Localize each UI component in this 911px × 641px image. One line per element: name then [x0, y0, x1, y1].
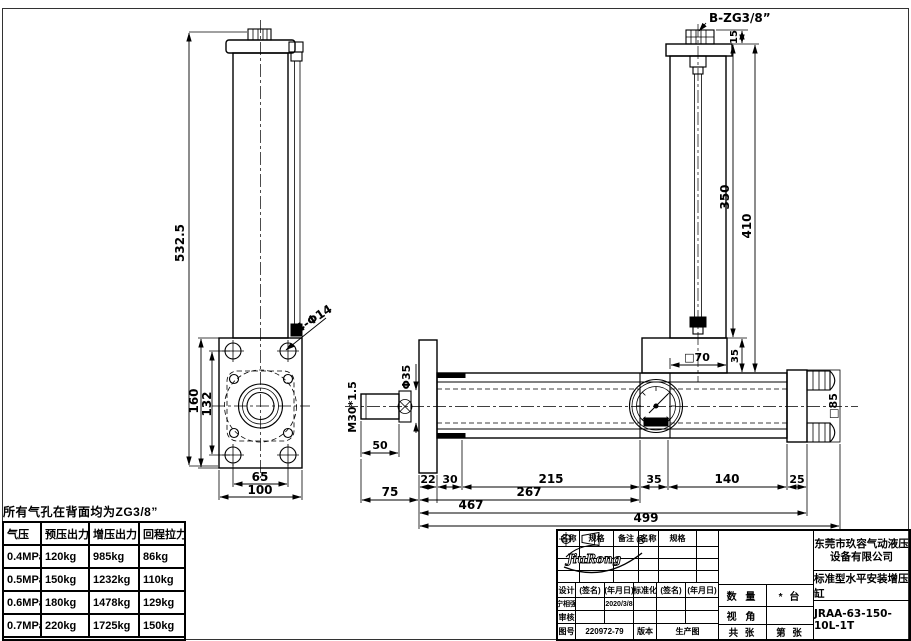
audit-row: 审核: [558, 611, 718, 624]
dim-30: 30: [442, 473, 458, 486]
spec-cell: 180kg: [42, 592, 90, 613]
dim-port-offset: 15: [729, 30, 740, 44]
company-line1: 东莞市玖容气动液压: [814, 538, 909, 551]
logo-box: JiuRong ®: [719, 531, 813, 585]
dim-hole-span-h: 65: [252, 470, 269, 484]
spec-header: 增压出力: [90, 523, 140, 544]
spec-cell: 0.4MPa: [4, 546, 42, 567]
spec-header: 气压: [4, 523, 42, 544]
view-angle-row: 视 角: [719, 607, 813, 625]
cell: [686, 598, 718, 610]
spec-cell: 86kg: [140, 546, 184, 567]
dim-block-height: 35: [730, 349, 741, 363]
spec-table: 气压 预压出力 增压出力 回程拉力 0.4MPa 120kg 985kg 86k…: [2, 521, 186, 641]
dim-35: 35: [646, 473, 661, 486]
audit-label: 审核: [558, 611, 576, 623]
sheets-total: 共 张: [719, 625, 767, 639]
company-name: 东莞市玖容气动液压 设备有限公司: [814, 531, 909, 571]
pressure-gauge: [630, 380, 683, 433]
dim-total-height: 532.5: [173, 224, 187, 262]
design-label: 设计: [558, 583, 576, 597]
model-number: JRAA-63-150-10L-1T: [814, 601, 909, 639]
dim-square85: □85: [827, 393, 840, 419]
dim-215: 215: [538, 472, 563, 486]
left-view: 532.5 160 132 65 100 4-Φ14: [173, 20, 335, 500]
title-block-middle: JiuRong ® 数 量 * 台 视 角 共 张 第 张: [719, 531, 814, 639]
parts-cell: [697, 571, 718, 582]
rod-thread-label: M30*1.5: [346, 381, 359, 433]
port-b-label: B-ZG3/8”: [709, 11, 771, 25]
dim-75: 75: [382, 485, 399, 499]
spec-cell: 110kg: [140, 569, 184, 590]
cell: [634, 611, 657, 623]
spec-cell: 0.5MPa: [4, 569, 42, 590]
spec-cell: 1725kg: [90, 615, 140, 636]
spec-cell: 1232kg: [90, 569, 140, 590]
drawing-no-label: 图号: [558, 624, 576, 639]
main-view: M30*1.5 Φ35 50: [345, 338, 858, 529]
parts-header: [697, 531, 718, 546]
title-block: 名称 规格 备注 名称 规格 设计 (签名) (年月日) 标准化 (签名) (年…: [556, 529, 911, 641]
title-block-right: 东莞市玖容气动液压 设备有限公司 标准型水平安装增压缸 JRAA-63-150-…: [814, 531, 909, 639]
spec-cell: 985kg: [90, 546, 140, 567]
spec-cell: 1478kg: [90, 592, 140, 613]
parts-header: 规格: [659, 531, 697, 546]
rod-dia-label: Φ35: [400, 365, 413, 390]
date-label: (年月日): [686, 583, 718, 597]
dim-25: 25: [789, 473, 804, 486]
sheet-no: 第 张: [767, 625, 813, 639]
qty-row: 数 量 * 台: [719, 585, 813, 607]
spec-header: 回程拉力: [140, 523, 184, 544]
dim-467: 467: [458, 498, 483, 512]
parts-cell: [697, 559, 718, 570]
designer-row: 宁相强 2020/3/8: [558, 598, 718, 611]
company-line2: 设备有限公司: [830, 551, 893, 564]
designer-name: 宁相强: [558, 598, 576, 610]
parts-cell: [697, 547, 718, 558]
sign-label: (签名): [576, 583, 605, 597]
view-angle-label: 视 角: [719, 607, 767, 624]
first-angle-projection-icon: [767, 607, 813, 624]
dim-plate-height: 160: [187, 388, 201, 413]
version-label: 版本: [634, 624, 657, 639]
parts-cell: [659, 547, 697, 558]
parts-cell: [659, 571, 697, 582]
dim-plate-width: 100: [247, 483, 272, 497]
spec-cell: 0.6MPa: [4, 592, 42, 613]
drawing-no: 220972-79: [576, 624, 634, 639]
cell: [634, 598, 657, 610]
spec-cell: 129kg: [140, 592, 184, 613]
right-view: B-ZG3/8” 15 350 410 35: [666, 11, 771, 382]
dim-rod-extend: 50: [372, 439, 388, 452]
spec-header-row: 气压 预压出力 增压出力 回程拉力: [4, 523, 184, 546]
dim-hole-span-v: 132: [200, 391, 214, 416]
dim-267: 267: [516, 485, 541, 499]
qty-label: 数 量: [719, 585, 767, 606]
holes-label: 4-Φ14: [293, 302, 334, 336]
product-name: 标准型水平安装增压缸: [814, 571, 909, 601]
dim-cylinder-length: 410: [740, 213, 754, 238]
drawing-no-row: 图号 220972-79 版本 生产图: [558, 624, 718, 639]
sign-label: (签名): [657, 583, 686, 597]
design-date: 2020/3/8: [605, 598, 634, 610]
dim-22: 22: [420, 473, 435, 486]
spec-row: 0.7MPa 220kg 1725kg 150kg: [4, 615, 184, 638]
registered-mark: ®: [635, 533, 647, 547]
ports-note: 所有气孔在背面均为ZG3/8”: [3, 503, 158, 520]
spec-cell: 0.7MPa: [4, 615, 42, 636]
cell: [686, 611, 718, 623]
drawing-sheet: 532.5 160 132 65 100 4-Φ14: [0, 0, 911, 641]
cell: [657, 611, 686, 623]
dim-square70: □70: [684, 351, 710, 364]
cell: [576, 611, 605, 623]
spec-cell: 150kg: [140, 615, 184, 636]
sheets-row: 共 张 第 张: [719, 625, 813, 639]
dim-140: 140: [714, 472, 739, 486]
spec-row: 0.4MPa 120kg 985kg 86kg: [4, 546, 184, 569]
version-value: 生产图: [657, 624, 718, 639]
date-label: (年月日): [605, 583, 634, 597]
spec-row: 0.6MPa 180kg 1478kg 129kg: [4, 592, 184, 615]
spec-cell: 220kg: [42, 615, 90, 636]
logo-text: JiuRong: [565, 552, 621, 566]
dim-499: 499: [633, 511, 658, 525]
cell: [605, 611, 634, 623]
dim-tube-length: 350: [718, 184, 732, 209]
spec-cell: 150kg: [42, 569, 90, 590]
standardization-label: 标准化: [634, 583, 657, 597]
spec-header: 预压出力: [42, 523, 90, 544]
cell: [657, 598, 686, 610]
spec-cell: 120kg: [42, 546, 90, 567]
sign-cell: [576, 598, 605, 610]
parts-cell: [659, 559, 697, 570]
spec-row: 0.5MPa 150kg 1232kg 110kg: [4, 569, 184, 592]
sign-header-row: 设计 (签名) (年月日) 标准化 (签名) (年月日): [558, 583, 718, 598]
qty-value: * 台: [767, 585, 813, 606]
